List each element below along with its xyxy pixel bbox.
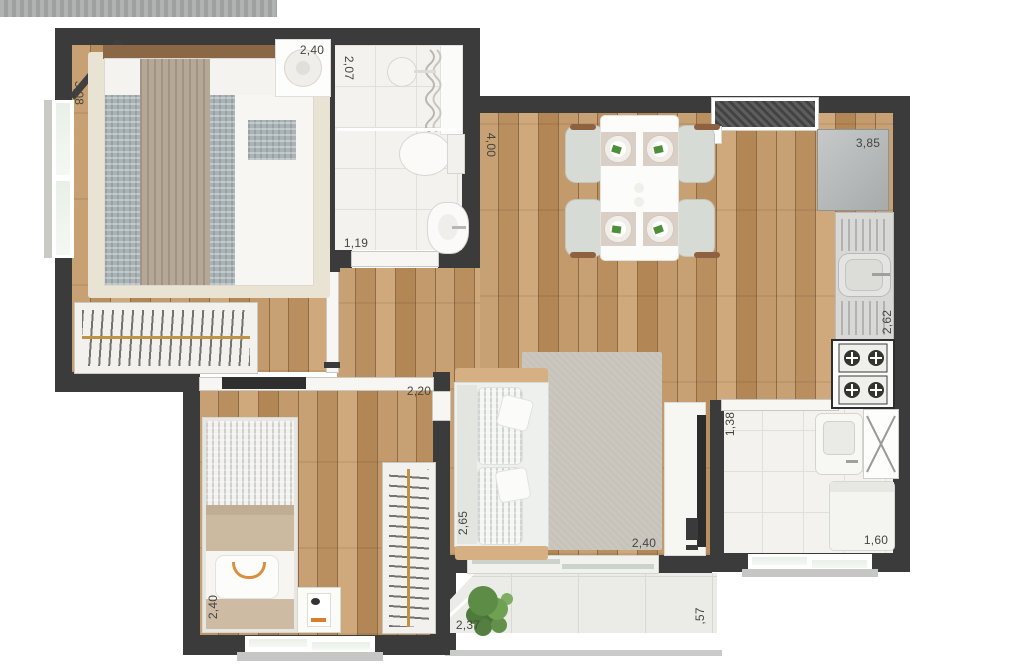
balcony-wall-right-seg bbox=[655, 555, 712, 573]
bedroom2-right-wall bbox=[433, 420, 450, 655]
bedroom1-window-glass2 bbox=[56, 181, 70, 255]
dim-bedroom2-width: 2,20 bbox=[401, 384, 437, 398]
bedroom1-bottom-wall bbox=[55, 372, 200, 392]
wardrobe-bedroom2-rail bbox=[407, 469, 410, 627]
table-lamp-inner bbox=[296, 61, 310, 75]
bedroom2-left-wall bbox=[183, 372, 200, 655]
kitchen-laundry-wall bbox=[722, 400, 838, 410]
dim-bathroom-depth: 2,07 bbox=[342, 50, 356, 86]
sofa-trim-top bbox=[455, 368, 548, 384]
bedroom2-window-sill bbox=[237, 652, 383, 661]
entry-door bbox=[712, 98, 818, 130]
dining-chair-2 bbox=[566, 200, 604, 256]
bedroom1-window-glass bbox=[56, 103, 70, 175]
laundry-tank-basin bbox=[823, 421, 855, 455]
washer-space-x bbox=[864, 410, 898, 478]
sofa-trim-bottom bbox=[455, 546, 548, 560]
table-centerpiece bbox=[634, 183, 644, 193]
kitchen-faucet bbox=[872, 273, 890, 276]
dim-bedroom1-width: 2,40 bbox=[294, 43, 330, 57]
wardrobe-bedroom1-rail bbox=[82, 336, 250, 339]
bedroom2-window-glass bbox=[249, 639, 307, 647]
dim-bedroom1-depth: 3,08 bbox=[72, 75, 86, 111]
double-bed-folded-throw bbox=[248, 120, 296, 160]
dim-kitchen-counter: 2,62 bbox=[880, 304, 894, 340]
dim-bedroom2-depth: 2,40 bbox=[206, 589, 220, 625]
bedroom2-window-glass2 bbox=[312, 642, 370, 650]
balcony-sliding-door-pane2 bbox=[562, 564, 654, 569]
garnish-3 bbox=[612, 225, 622, 233]
top-wall-right bbox=[480, 96, 910, 113]
dim-kitchen-length: 3,85 bbox=[850, 136, 886, 150]
balcony-railing bbox=[0, 0, 277, 17]
shower-area-line bbox=[337, 128, 461, 131]
floor-frame-accent bbox=[311, 618, 326, 622]
shower-arm bbox=[414, 70, 436, 73]
bathroom-faucet bbox=[452, 226, 466, 229]
dim-living-width: 2,40 bbox=[626, 536, 662, 550]
sofa-pillow-2 bbox=[496, 468, 531, 503]
laundry-window-glass2 bbox=[812, 560, 867, 568]
dim-bathroom-width: 1,19 bbox=[338, 236, 374, 250]
potted-plant bbox=[468, 586, 498, 616]
double-bed-runner bbox=[140, 59, 210, 285]
dining-chair-4 bbox=[676, 200, 714, 256]
bedroom2-shelf bbox=[222, 377, 306, 389]
dining-chair-1 bbox=[566, 126, 604, 182]
dining-chair-3 bbox=[676, 126, 714, 182]
dim-living-depth: 4,00 bbox=[484, 127, 498, 163]
toilet-bowl bbox=[400, 133, 450, 175]
chair-arm bbox=[694, 124, 720, 130]
media-device bbox=[686, 518, 698, 540]
washing-machine-panel bbox=[830, 482, 894, 492]
tv bbox=[697, 415, 706, 547]
dim-service-width: 1,38 bbox=[723, 406, 737, 442]
drainboard-top bbox=[841, 219, 888, 251]
floor-frame-mark bbox=[311, 598, 320, 605]
dim-balcony-width: 2,37 bbox=[450, 618, 486, 632]
single-bed-blanket bbox=[206, 505, 294, 553]
chair-arm bbox=[570, 252, 596, 258]
shower-head bbox=[388, 58, 416, 86]
chair-arm bbox=[694, 252, 720, 258]
bedroom1-door-jamb-bottom bbox=[324, 362, 340, 368]
toilet-tank bbox=[448, 135, 464, 173]
laundry-window-sill bbox=[742, 569, 878, 577]
dim-balcony-depth: ,57 bbox=[693, 598, 707, 634]
right-wall bbox=[893, 96, 910, 572]
laundry-window-glass bbox=[752, 557, 807, 565]
bathroom-door-threshold bbox=[352, 252, 438, 266]
laundry-tank-faucet bbox=[846, 460, 858, 463]
media-device-2 bbox=[686, 545, 698, 550]
shower-shelf bbox=[441, 46, 462, 134]
shower-curtain bbox=[424, 48, 444, 132]
chair-arm bbox=[570, 124, 596, 130]
single-bed-mattress bbox=[206, 421, 294, 507]
dim-service-length: 1,60 bbox=[858, 533, 894, 547]
floor-plan: 3,08 2,40 2,07 1,19 4,00 3,85 2,62 2,20 … bbox=[0, 0, 1024, 672]
dim-sofa-wall: 2,65 bbox=[456, 505, 470, 541]
laundry-left-wall bbox=[710, 400, 724, 555]
balcony-railing-outer bbox=[445, 650, 722, 656]
stove-burners bbox=[833, 341, 893, 407]
